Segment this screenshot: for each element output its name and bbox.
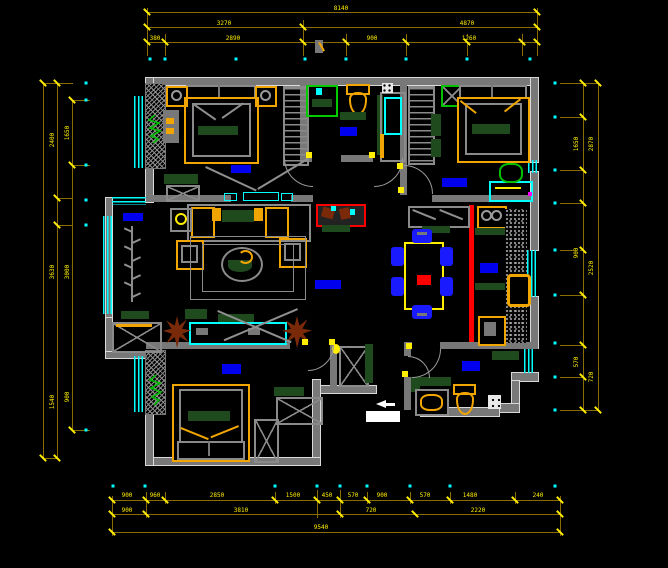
dim-label: 1480 bbox=[462, 493, 478, 499]
dim-label: 960 bbox=[149, 493, 162, 499]
coffee-table-decor bbox=[238, 250, 253, 264]
fridge-inner bbox=[484, 322, 496, 336]
dim-line bbox=[598, 83, 599, 410]
dining-chair bbox=[440, 247, 453, 266]
wall-twig-stem bbox=[131, 226, 133, 302]
dim-label: 240 bbox=[532, 493, 545, 499]
dim-label: 570 bbox=[574, 356, 580, 369]
dim-ext bbox=[560, 250, 584, 251]
witness-dot bbox=[235, 58, 238, 61]
dim-line bbox=[147, 12, 538, 13]
cabinet-green bbox=[121, 311, 149, 319]
wall-twig-branch bbox=[132, 274, 141, 279]
door-hinge bbox=[398, 187, 404, 193]
wall-foyer-bottom bbox=[318, 386, 376, 393]
window bbox=[112, 197, 146, 205]
witness-dot bbox=[85, 429, 88, 432]
foyer-shelf bbox=[492, 351, 519, 360]
dim-label: 570 bbox=[419, 493, 432, 499]
dim-ext bbox=[560, 377, 584, 378]
dim-line bbox=[43, 83, 44, 459]
witness-dot bbox=[345, 58, 348, 61]
dim-label: 900 bbox=[376, 493, 389, 499]
witness-dot bbox=[554, 409, 557, 412]
bed2-cabinet bbox=[431, 139, 441, 157]
witness-dot bbox=[554, 82, 557, 85]
bed1-dresser bbox=[163, 110, 179, 143]
shoe-cabinet-side bbox=[365, 344, 373, 383]
sink2-basin bbox=[420, 394, 443, 411]
dim-label: 2850 bbox=[209, 493, 225, 499]
witness-dot bbox=[85, 99, 88, 102]
dim-label: 1540 bbox=[50, 394, 56, 410]
window bbox=[524, 348, 534, 373]
door-arc bbox=[404, 165, 433, 194]
witness-dot bbox=[554, 169, 557, 172]
door-hinge bbox=[397, 163, 403, 169]
bed3-wardrobe bbox=[276, 397, 323, 425]
bed1-dresser-knob bbox=[166, 118, 174, 124]
stove-burner bbox=[491, 210, 502, 221]
kitchen-counter bbox=[475, 283, 505, 290]
dim-line bbox=[72, 100, 73, 431]
dining-chair-arm bbox=[417, 232, 427, 235]
door-hinge bbox=[302, 339, 308, 345]
dim-line bbox=[583, 83, 584, 410]
dining-chair bbox=[440, 277, 453, 296]
sliding-door-track bbox=[224, 193, 237, 201]
witness-dot bbox=[449, 485, 452, 488]
dim-line bbox=[147, 27, 538, 28]
dim-ext bbox=[560, 170, 584, 171]
dim-line bbox=[112, 532, 560, 533]
kitchen-counter bbox=[475, 228, 505, 235]
dim-label: 2520 bbox=[589, 260, 595, 276]
sliding-door-track bbox=[281, 193, 293, 201]
wall-bath2-left bbox=[404, 377, 411, 410]
dim-label: 900 bbox=[121, 493, 134, 499]
wall-twig-branch bbox=[132, 292, 141, 297]
dim-label: 8140 bbox=[333, 6, 349, 12]
bed1-dresser-knob bbox=[166, 128, 174, 134]
window bbox=[134, 96, 143, 168]
witness-dot bbox=[304, 58, 307, 61]
room-label-block-bath1 bbox=[340, 127, 357, 136]
dining-chair-arm bbox=[417, 313, 427, 316]
witness-dot bbox=[409, 485, 412, 488]
dim-ext bbox=[560, 345, 584, 346]
dim-label: 3810 bbox=[233, 508, 249, 514]
door-hinge bbox=[406, 343, 412, 349]
sofa-cushion bbox=[265, 207, 289, 238]
magenta-mark bbox=[528, 192, 532, 196]
dim-label: 4870 bbox=[459, 21, 475, 27]
dim-label: 1650 bbox=[65, 125, 71, 141]
witness-dot bbox=[85, 224, 88, 227]
window bbox=[134, 356, 143, 412]
dining-centerpiece bbox=[417, 275, 431, 285]
witness-dot bbox=[339, 485, 342, 488]
sofa-seat bbox=[222, 210, 254, 222]
witness-dot bbox=[366, 485, 369, 488]
floorplan-canvas[interactable]: 8140327048703802890900126090096028501500… bbox=[0, 0, 668, 568]
dim-ext bbox=[560, 295, 584, 296]
dining-chair bbox=[412, 305, 432, 319]
dim-label: 720 bbox=[365, 508, 378, 514]
witness-dot bbox=[405, 58, 408, 61]
wall-right bbox=[531, 78, 538, 162]
door-hinge bbox=[306, 152, 312, 158]
dim-label: 900 bbox=[366, 36, 379, 42]
plant-icon bbox=[146, 114, 164, 144]
dim-label: 2870 bbox=[589, 136, 595, 152]
dim-ext bbox=[560, 410, 599, 411]
floor-drain bbox=[488, 395, 501, 409]
side-table-lamp bbox=[175, 213, 187, 225]
room-label-block-bath2 bbox=[462, 361, 480, 371]
witness-dot bbox=[274, 485, 277, 488]
side-table bbox=[166, 185, 200, 202]
dim-label: 2890 bbox=[225, 36, 241, 42]
dining-chair bbox=[391, 247, 404, 266]
door-arc bbox=[284, 158, 313, 187]
witness-dot bbox=[85, 164, 88, 167]
bed1-nightstand-lamp bbox=[260, 90, 271, 101]
witness-dot bbox=[164, 58, 167, 61]
desk bbox=[489, 181, 533, 202]
bed3-footboard bbox=[177, 441, 245, 460]
shower-head bbox=[316, 88, 322, 95]
entry-label-block bbox=[366, 411, 400, 422]
console-shelf bbox=[322, 225, 350, 232]
room-label-block-kitchen bbox=[480, 263, 498, 273]
dim-label: 900 bbox=[65, 391, 71, 404]
dim-ext bbox=[560, 83, 599, 84]
wall-twig-branch bbox=[132, 238, 141, 243]
kitchen-sink bbox=[507, 274, 531, 307]
vanity-mirror bbox=[384, 97, 402, 135]
dim-label: 3000 bbox=[65, 264, 71, 280]
wall-step bbox=[512, 373, 538, 381]
console-decor-cyan bbox=[350, 209, 355, 215]
witness-dot bbox=[144, 485, 147, 488]
dim-label: 3270 bbox=[216, 21, 232, 27]
door-hinge bbox=[369, 152, 375, 158]
dim-label: 2220 bbox=[470, 508, 486, 514]
witness-dot bbox=[554, 485, 557, 488]
door-hinge bbox=[402, 371, 408, 377]
witness-dot bbox=[554, 116, 557, 119]
bath-shelf bbox=[340, 112, 366, 120]
witness-dot bbox=[85, 82, 88, 85]
wall-top bbox=[146, 78, 538, 85]
bed1-nightstand-lamp bbox=[171, 90, 182, 101]
sliding-door-track bbox=[243, 192, 279, 201]
cabinet-green bbox=[185, 309, 207, 319]
washing-machine bbox=[382, 83, 393, 93]
bed2-pillow bbox=[472, 124, 510, 134]
entry-arrow-icon bbox=[376, 400, 386, 408]
dim-label: 900 bbox=[121, 508, 134, 514]
console-decor-cyan bbox=[331, 206, 336, 211]
dim-label: 2400 bbox=[50, 132, 56, 148]
dim-label: 9540 bbox=[313, 525, 329, 531]
witness-dot bbox=[554, 202, 557, 205]
room-label-block-bed3 bbox=[222, 364, 241, 374]
room-label-block-hall bbox=[315, 280, 341, 289]
bed3-footboard-divider bbox=[208, 441, 210, 456]
desk-inner bbox=[495, 187, 521, 189]
witness-dot bbox=[554, 342, 557, 345]
wall-left-lower bbox=[146, 412, 153, 465]
dim-label: 3630 bbox=[50, 264, 56, 280]
dim-label: 1500 bbox=[285, 493, 301, 499]
dim-label: 720 bbox=[589, 371, 595, 384]
wall-twig-branch bbox=[132, 256, 141, 261]
shower-bench bbox=[312, 99, 332, 107]
sofa-pillow bbox=[212, 208, 221, 221]
room-label-block-living bbox=[123, 213, 143, 221]
vanity-drawer bbox=[380, 134, 384, 158]
witness-dot bbox=[85, 199, 88, 202]
room-label-block-bed1 bbox=[231, 165, 251, 173]
dim-ext bbox=[560, 117, 584, 118]
washing-machine-top bbox=[116, 324, 152, 327]
dim-label: 570 bbox=[347, 493, 360, 499]
dim-label: 450 bbox=[321, 493, 334, 499]
dim-label: 380 bbox=[149, 36, 162, 42]
dim-line bbox=[112, 500, 560, 501]
bench bbox=[164, 174, 198, 184]
dim-ext bbox=[560, 203, 584, 204]
witness-dot bbox=[149, 58, 152, 61]
witness-dot bbox=[466, 58, 469, 61]
dim-line bbox=[112, 514, 560, 515]
desk-chair bbox=[499, 163, 523, 183]
dim-label: 1650 bbox=[574, 136, 580, 152]
witness-dot bbox=[316, 485, 319, 488]
dining-chair bbox=[391, 277, 404, 296]
witness-dot bbox=[529, 58, 532, 61]
bed3-pillow bbox=[188, 411, 230, 421]
witness-dot bbox=[554, 249, 557, 252]
bed3-wardrobe bbox=[254, 419, 279, 463]
bed1-pillow bbox=[198, 126, 238, 135]
door-hinge bbox=[329, 339, 335, 345]
witness-dot bbox=[554, 294, 557, 297]
wall-hall-bed1 bbox=[291, 195, 313, 202]
window bbox=[103, 216, 112, 314]
dim-line bbox=[57, 83, 58, 459]
witness-dot bbox=[554, 376, 557, 379]
plant-icon bbox=[148, 374, 164, 406]
wall-bath2-left bbox=[404, 349, 411, 356]
dim-ext bbox=[317, 490, 318, 518]
bed3-shelf bbox=[274, 387, 304, 396]
dim-line bbox=[147, 42, 538, 43]
bed2-cabinet bbox=[431, 114, 441, 136]
sofa-pillow bbox=[254, 208, 263, 221]
witness-dot bbox=[112, 485, 115, 488]
room-label-block-bed2 bbox=[442, 178, 467, 187]
tv-console-foot bbox=[196, 328, 208, 335]
wall-right bbox=[531, 297, 538, 348]
entry-arrow-stem bbox=[386, 403, 395, 406]
